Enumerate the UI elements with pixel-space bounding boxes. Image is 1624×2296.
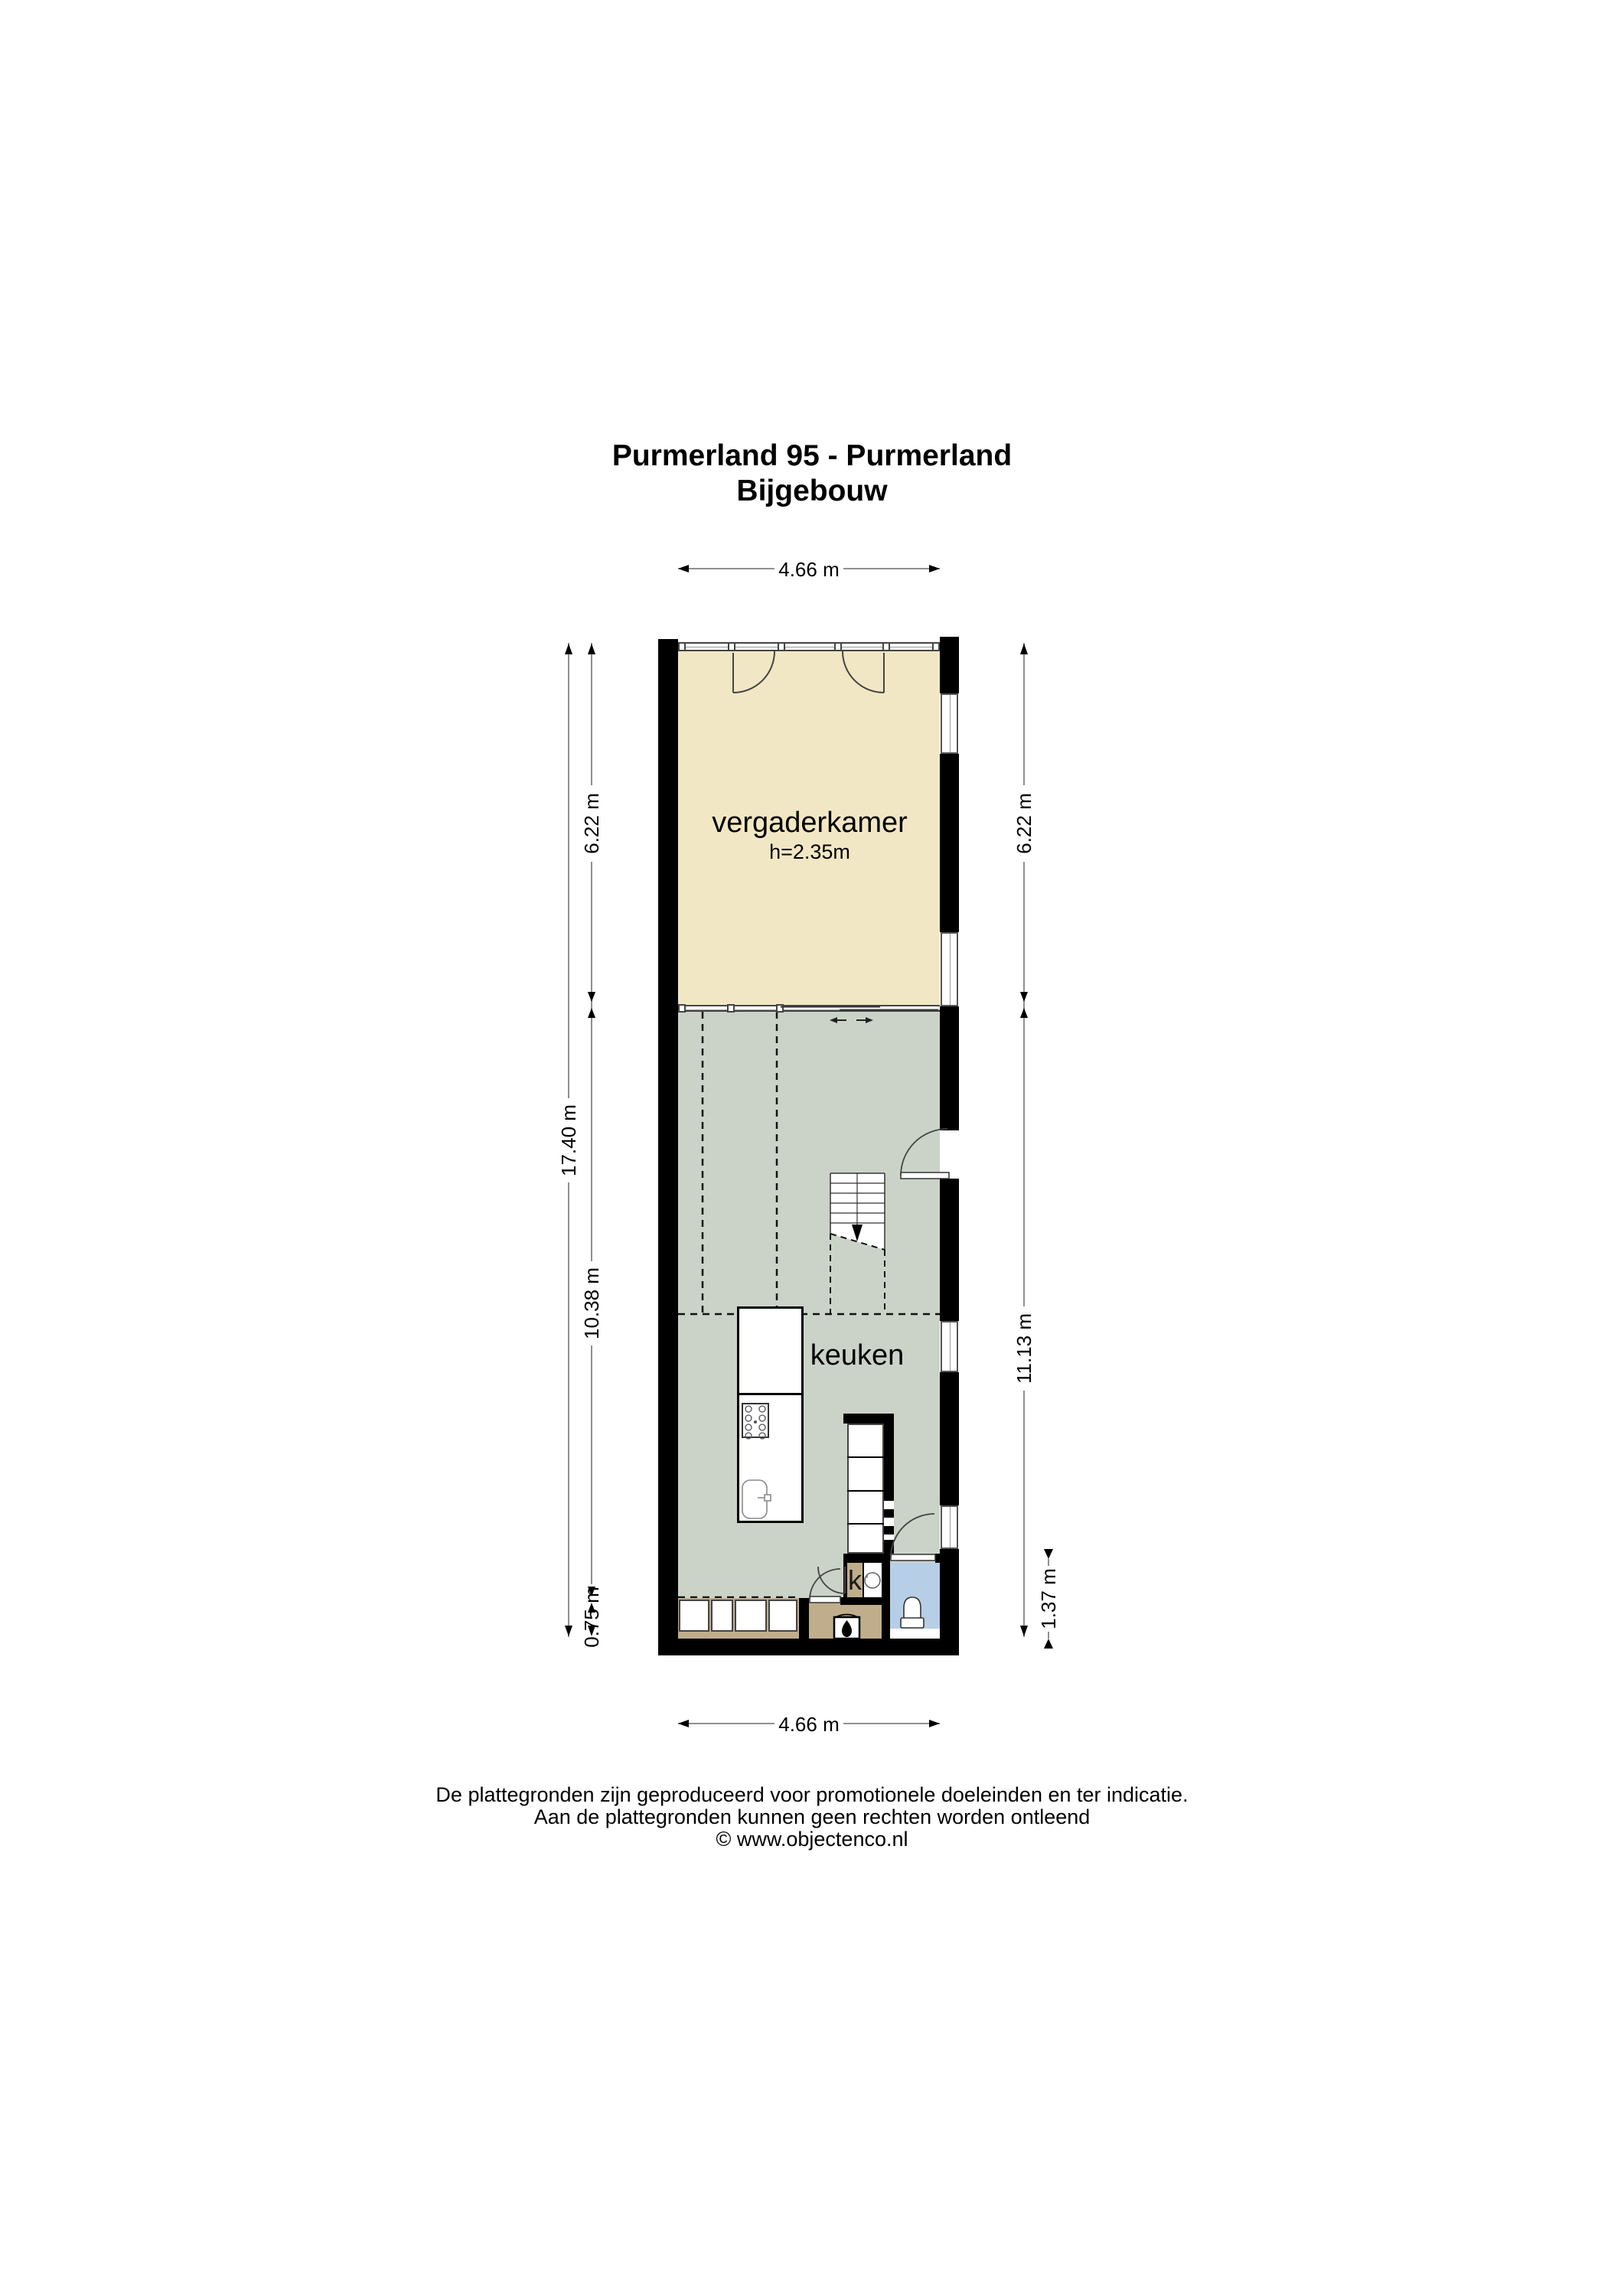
- mullion-top-1: [678, 642, 686, 651]
- counter-cabinet-3: [735, 1600, 767, 1632]
- mullion-top-3: [778, 642, 785, 651]
- mullion-mid-2: [727, 1004, 735, 1013]
- wall-interior-3: [882, 1554, 890, 1639]
- wall-right-seg6: [940, 1549, 959, 1655]
- wall-nub-bathroom: [935, 1554, 940, 1563]
- counter-cabinet-2: [711, 1600, 733, 1632]
- cabinet-column: [847, 1424, 884, 1554]
- wall-right-seg4: [940, 1179, 959, 1321]
- wall-interior-5: [843, 1563, 847, 1598]
- wall-interior-2: [840, 1597, 882, 1605]
- wall-right-seg3: [940, 1006, 959, 1130]
- mullion-top-4: [834, 642, 842, 651]
- wall-right-seg1: [940, 637, 959, 693]
- wall-interior-1: [799, 1598, 809, 1639]
- glass-front-top: [678, 642, 940, 651]
- counter-cabinet-1: [679, 1600, 709, 1632]
- wall-bottom: [658, 1639, 959, 1655]
- wall-left: [658, 639, 678, 1655]
- dim-label-left-seg3: 0.75 m: [581, 1584, 602, 1650]
- page-title-line2: Bijgebouw: [0, 475, 1624, 508]
- dim-label-top-width: 4.66 m: [774, 559, 843, 580]
- window-right-4: [941, 1505, 958, 1549]
- bathroom-floor-strip: [890, 1629, 940, 1639]
- dim-label-right-seg2: 11.13 m: [1013, 1306, 1035, 1391]
- page-title-line1: Purmerland 95 - Purmerland: [0, 439, 1624, 473]
- dim-label-bathroom: 1.37 m: [1038, 1566, 1059, 1632]
- stove-room: [809, 1600, 882, 1639]
- dim-label-left-total: 17.40 m: [558, 1098, 579, 1182]
- counter-cabinet-4: [768, 1600, 797, 1632]
- cabinet-divider-1: [847, 1456, 884, 1458]
- mullion-mid-1: [678, 1004, 686, 1013]
- partition-sliding-wall: [678, 1005, 940, 1012]
- room-label-vergaderkamer: vergaderkamer: [679, 807, 941, 840]
- room-keuken: [678, 1012, 940, 1639]
- mullion-top-6: [932, 642, 940, 651]
- floorplan-page: Purmerland 95 - Purmerland Bijgebouw 4.6…: [0, 0, 1624, 2296]
- cabinet-side-wall-dashed: [884, 1492, 894, 1540]
- window-right-2: [941, 932, 958, 1006]
- disclaimer-line2: Aan de plattegronden kunnen geen rechten…: [0, 1805, 1624, 1829]
- room-label-keuken: keuken: [781, 1339, 934, 1372]
- window-right-1: [941, 693, 958, 754]
- dim-label-left-seg1: 6.22 m: [581, 785, 602, 862]
- disclaimer-line1: De plattegronden zijn geproduceerd voor …: [0, 1783, 1624, 1807]
- dim-label-left-seg2: 10.38 m: [581, 1261, 602, 1345]
- copyright-line: © www.objectenco.nl: [0, 1828, 1624, 1851]
- room-height-note: h=2.35m: [679, 840, 941, 864]
- wall-interior-4: [843, 1554, 890, 1563]
- mullion-top-2: [728, 642, 735, 651]
- island-divider: [737, 1393, 804, 1395]
- dim-label-bottom-width: 4.66 m: [774, 1714, 843, 1735]
- mullion-mid-3: [776, 1004, 784, 1013]
- mullion-top-5: [882, 642, 890, 651]
- cabinet-top-wall: [843, 1414, 894, 1424]
- cabinet-divider-2: [847, 1490, 884, 1492]
- wall-right-seg5: [940, 1372, 959, 1505]
- wall-right-seg2: [940, 754, 959, 932]
- window-right-3: [941, 1321, 958, 1372]
- dim-label-right-seg1: 6.22 m: [1013, 785, 1035, 862]
- cabinet-divider-3: [847, 1523, 884, 1525]
- hob-box: [742, 1403, 769, 1438]
- bathroom: [890, 1563, 940, 1629]
